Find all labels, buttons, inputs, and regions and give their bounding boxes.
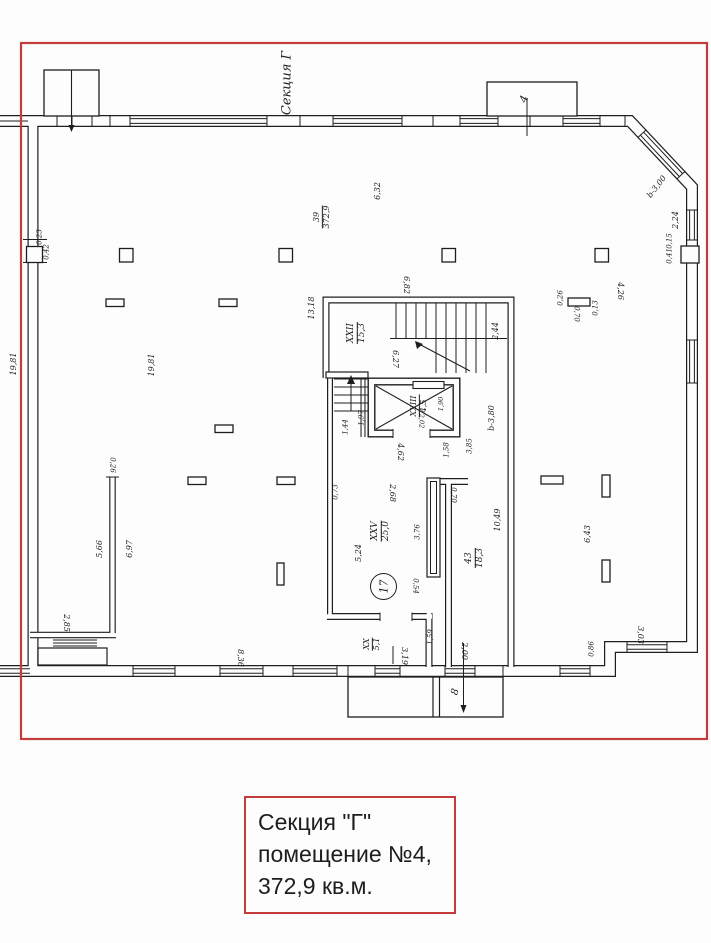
caption-line-1: Секция "Г" [258,806,448,838]
caption-line-2: помещение №4, [258,838,448,870]
door-openings [380,428,430,622]
staircase [326,304,507,379]
caption-line-3: 372,9 кв.м. [258,870,448,902]
section-caption-box: Секция "Г" помещение №4, 372,9 кв.м. [244,796,456,914]
windows [0,115,698,677]
exterior-walls [0,121,692,671]
elevator-shaft [376,382,452,430]
annex-structures [38,70,577,717]
floorplan-page: Секция Г48b-3,002,240,150,416,320,230,42… [0,0,711,943]
